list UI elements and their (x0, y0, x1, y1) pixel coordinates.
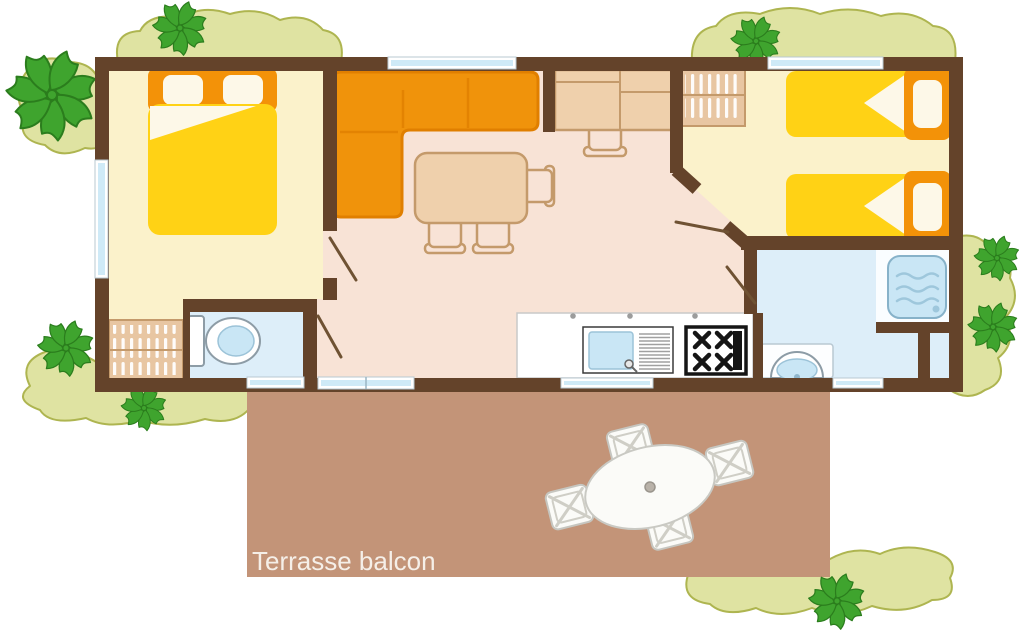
dining-chair (473, 220, 513, 253)
terrace-label: Terrasse balcon (252, 546, 436, 576)
stove (686, 327, 746, 374)
desk (555, 70, 672, 130)
shower-drain (933, 306, 940, 313)
window-kitchen-bottom (561, 378, 653, 388)
window-wc-bottom (247, 377, 304, 388)
wall-desk-nook (543, 57, 555, 132)
faucet (625, 360, 633, 368)
single-bed-top (786, 68, 951, 140)
terrace: Terrasse balcon (247, 385, 830, 577)
toilet-tank (188, 316, 204, 366)
pillow (913, 80, 942, 128)
wall-bedroom-left (323, 57, 337, 231)
floor-plan: Terrasse balcon (0, 0, 1024, 632)
floor-plan-page: Terrasse balcon (0, 0, 1024, 632)
pillow (913, 183, 942, 231)
kitchen (517, 313, 753, 378)
wardrobe-left (109, 320, 183, 380)
wall-shower (876, 322, 951, 333)
toilet (188, 316, 260, 366)
shower (888, 256, 946, 318)
window-living-top (388, 57, 516, 69)
window-bedroom-right-top (768, 57, 883, 69)
pillow (223, 75, 263, 105)
dining-chair (425, 220, 465, 253)
building (95, 57, 963, 392)
single-bed-bottom (786, 171, 951, 243)
outer-wall-right (949, 57, 963, 392)
wall-bedroom-right (670, 57, 683, 173)
wall-bathroom-top (741, 236, 951, 250)
wardrobe-right (682, 64, 745, 126)
window-bedroom-left (95, 160, 108, 278)
window-bathroom-bottom (833, 378, 883, 388)
wall-wc-right (303, 312, 317, 378)
bush-top-right (692, 8, 956, 62)
dining-table (415, 153, 527, 223)
pillow (163, 75, 203, 105)
wall-wc-top (183, 299, 317, 312)
kitchen-sink (583, 327, 673, 373)
bush-top-left (117, 10, 342, 62)
sliding-door-terrace (318, 377, 414, 389)
washbasin (761, 344, 833, 383)
double-bed (148, 68, 277, 235)
